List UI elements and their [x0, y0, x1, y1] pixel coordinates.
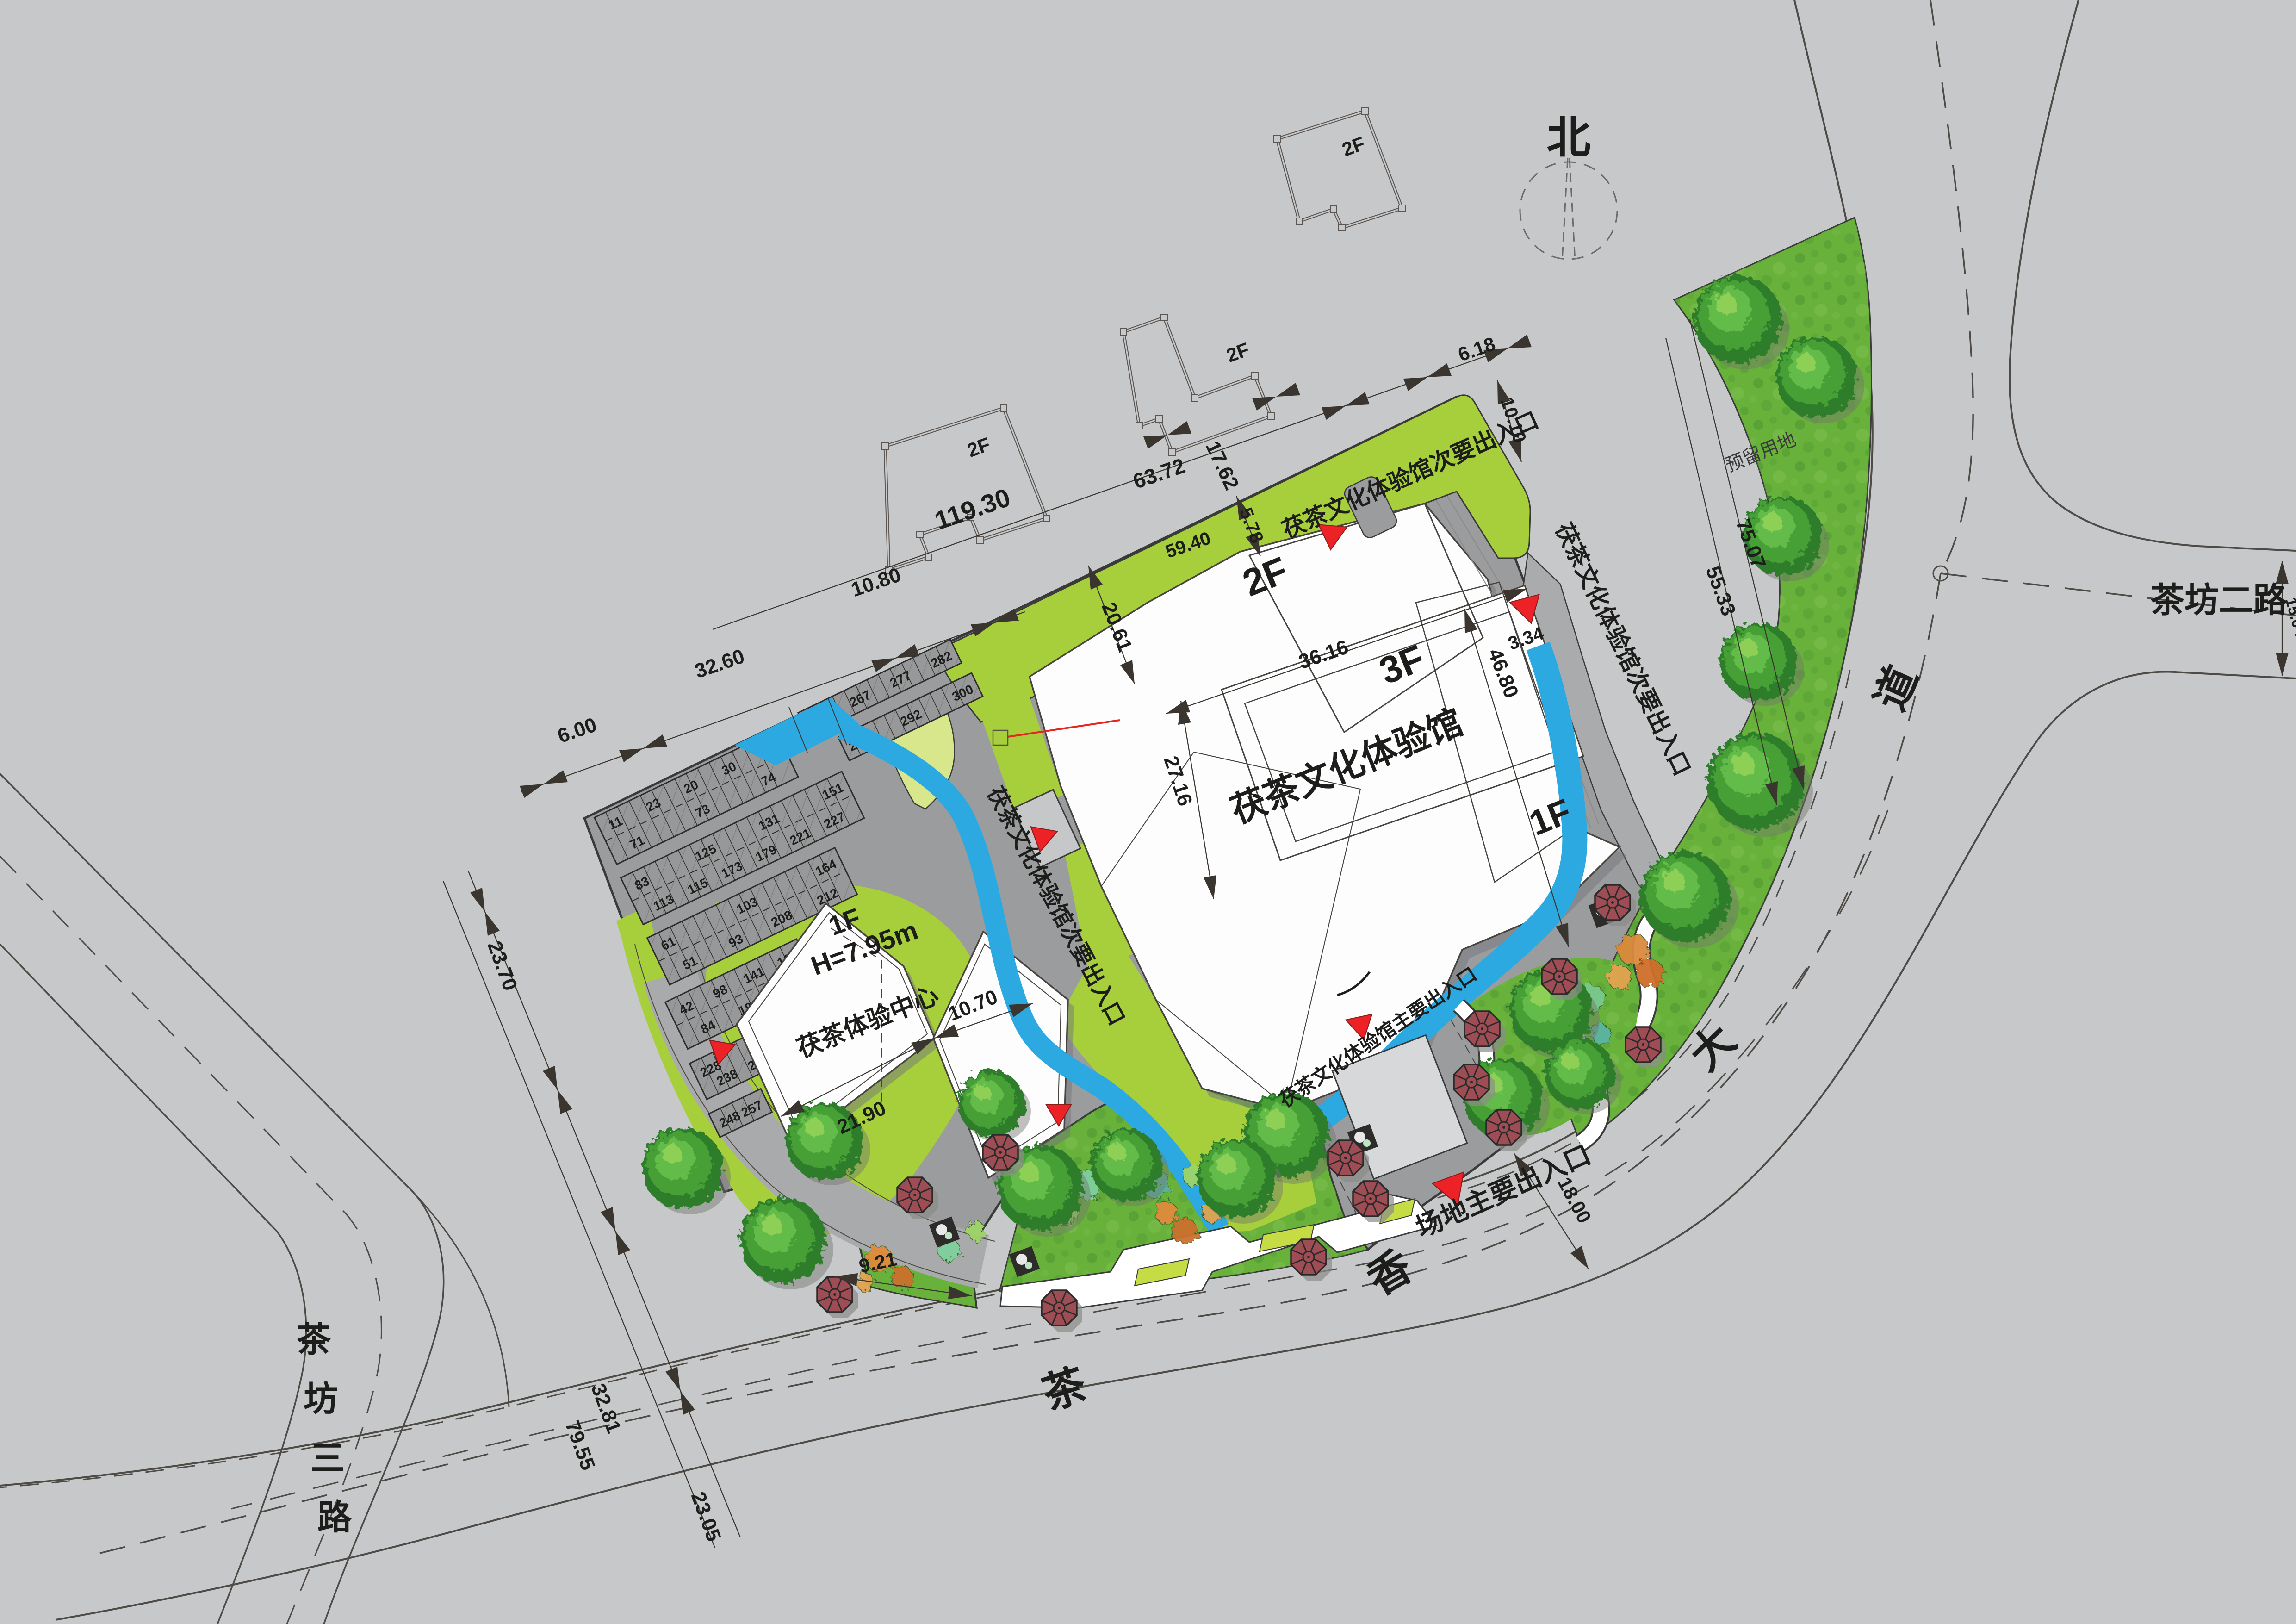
svg-text:三: 三 [310, 1439, 345, 1477]
svg-text:北: 北 [1546, 113, 1590, 162]
svg-text:路: 路 [317, 1498, 352, 1537]
svg-text:茶: 茶 [297, 1320, 331, 1359]
svg-text:茶坊二路: 茶坊二路 [2150, 581, 2288, 619]
svg-text:坊: 坊 [304, 1380, 338, 1418]
